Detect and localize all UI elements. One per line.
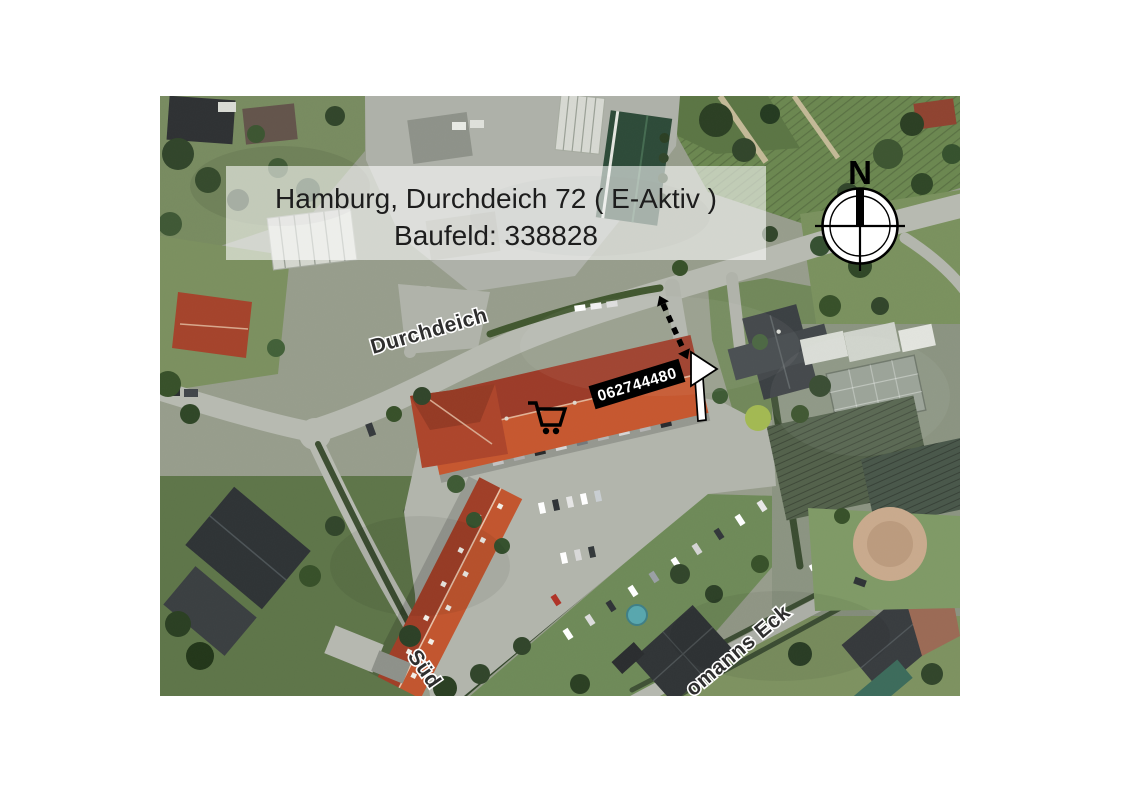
north-label: N xyxy=(848,154,872,191)
title-overlay: Hamburg, Durchdeich 72 ( E-Aktiv ) Baufe… xyxy=(226,166,766,260)
satellite-image: Durchdeich Süd omanns Eck xyxy=(160,96,960,696)
map-title-line2: Baufeld: 338828 xyxy=(394,220,598,251)
map-title-line1: Hamburg, Durchdeich 72 ( E-Aktiv ) xyxy=(275,183,717,214)
document-page: Durchdeich Süd omanns Eck xyxy=(0,0,1124,795)
satellite-map: Durchdeich Süd omanns Eck xyxy=(160,96,960,696)
